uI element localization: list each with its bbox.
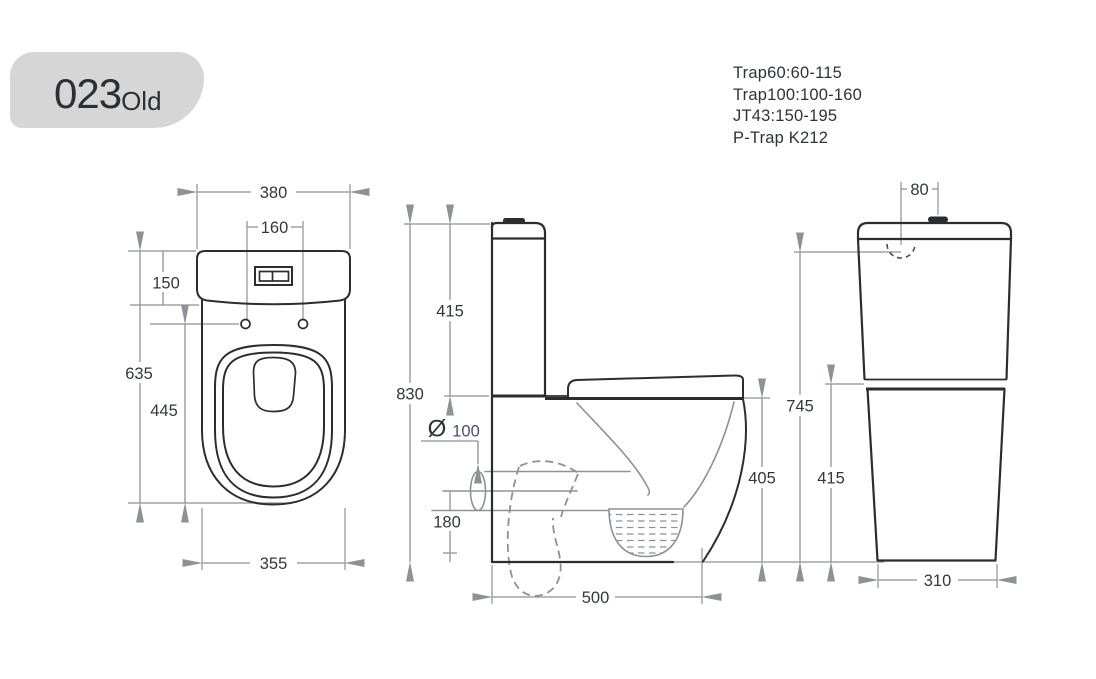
dim-outlet-diameter-value: 100 bbox=[452, 422, 480, 440]
back-cistern-lid bbox=[858, 223, 1011, 239]
dim-front-overall-height: 635 bbox=[125, 365, 153, 383]
dim-side-seat-height: 405 bbox=[748, 469, 776, 487]
side-cistern bbox=[492, 223, 545, 396]
drawing-sheet: 023Old Trap60:60-115 Trap100:100-160 JT4… bbox=[0, 0, 1096, 679]
back-inlet-button bbox=[928, 217, 948, 223]
flush-button-inner bbox=[260, 272, 289, 282]
dim-front-top-width: 380 bbox=[260, 184, 288, 202]
water-hatch bbox=[605, 515, 687, 554]
dim-front-bolt-spacing: 160 bbox=[261, 219, 289, 237]
side-view-dimensions: 830 415 Ø 100 180 405 500 bbox=[393, 224, 901, 607]
seat-bolt-hole-left bbox=[241, 320, 250, 329]
water-bowl bbox=[609, 509, 683, 557]
dim-back-body-height: 415 bbox=[817, 469, 845, 487]
dim-side-cistern-height: 415 bbox=[436, 302, 464, 320]
s-trap-hidden-outline bbox=[508, 467, 561, 596]
dim-back-inlet-offset: 80 bbox=[910, 181, 928, 199]
seat-bolt-hole-right bbox=[299, 320, 308, 329]
side-flush-button bbox=[503, 218, 525, 224]
dim-front-cistern-height: 150 bbox=[152, 274, 180, 292]
side-bowl-front bbox=[703, 399, 746, 562]
seat-inner-ring bbox=[223, 353, 324, 487]
bowl-water-spot bbox=[254, 358, 296, 412]
front-view-outline bbox=[197, 251, 350, 505]
side-view-outline bbox=[432, 218, 746, 596]
dim-outlet-diameter-symbol: Ø bbox=[428, 415, 447, 442]
technical-drawing: 380 160 150 635 445 355 bbox=[0, 0, 1096, 679]
dim-side-overall-height: 830 bbox=[396, 385, 424, 403]
back-cistern-sides bbox=[858, 239, 1011, 379]
front-cistern bbox=[197, 251, 350, 304]
side-seat bbox=[568, 375, 743, 398]
flush-button-outer bbox=[255, 267, 292, 285]
bowl-inner-wall bbox=[684, 402, 734, 507]
dim-side-overall-depth: 500 bbox=[582, 589, 610, 607]
back-body-sides bbox=[868, 389, 1005, 560]
dim-back-overall-height: 745 bbox=[786, 397, 814, 415]
back-view-dimensions: 80 415 310 bbox=[815, 181, 997, 590]
dim-front-base-width: 355 bbox=[260, 555, 288, 573]
front-view-dimensions: 380 160 150 635 445 355 bbox=[123, 184, 350, 573]
seat-outer-ring bbox=[215, 345, 332, 498]
dim-front-bowl-depth: 445 bbox=[150, 402, 178, 420]
bowl-funnel-line bbox=[577, 403, 649, 495]
dim-outlet-center-height: 180 bbox=[433, 513, 461, 531]
inlet-hole-hidden bbox=[887, 244, 915, 258]
dim-back-base-width: 310 bbox=[924, 572, 952, 590]
back-view-outline bbox=[858, 217, 1011, 561]
